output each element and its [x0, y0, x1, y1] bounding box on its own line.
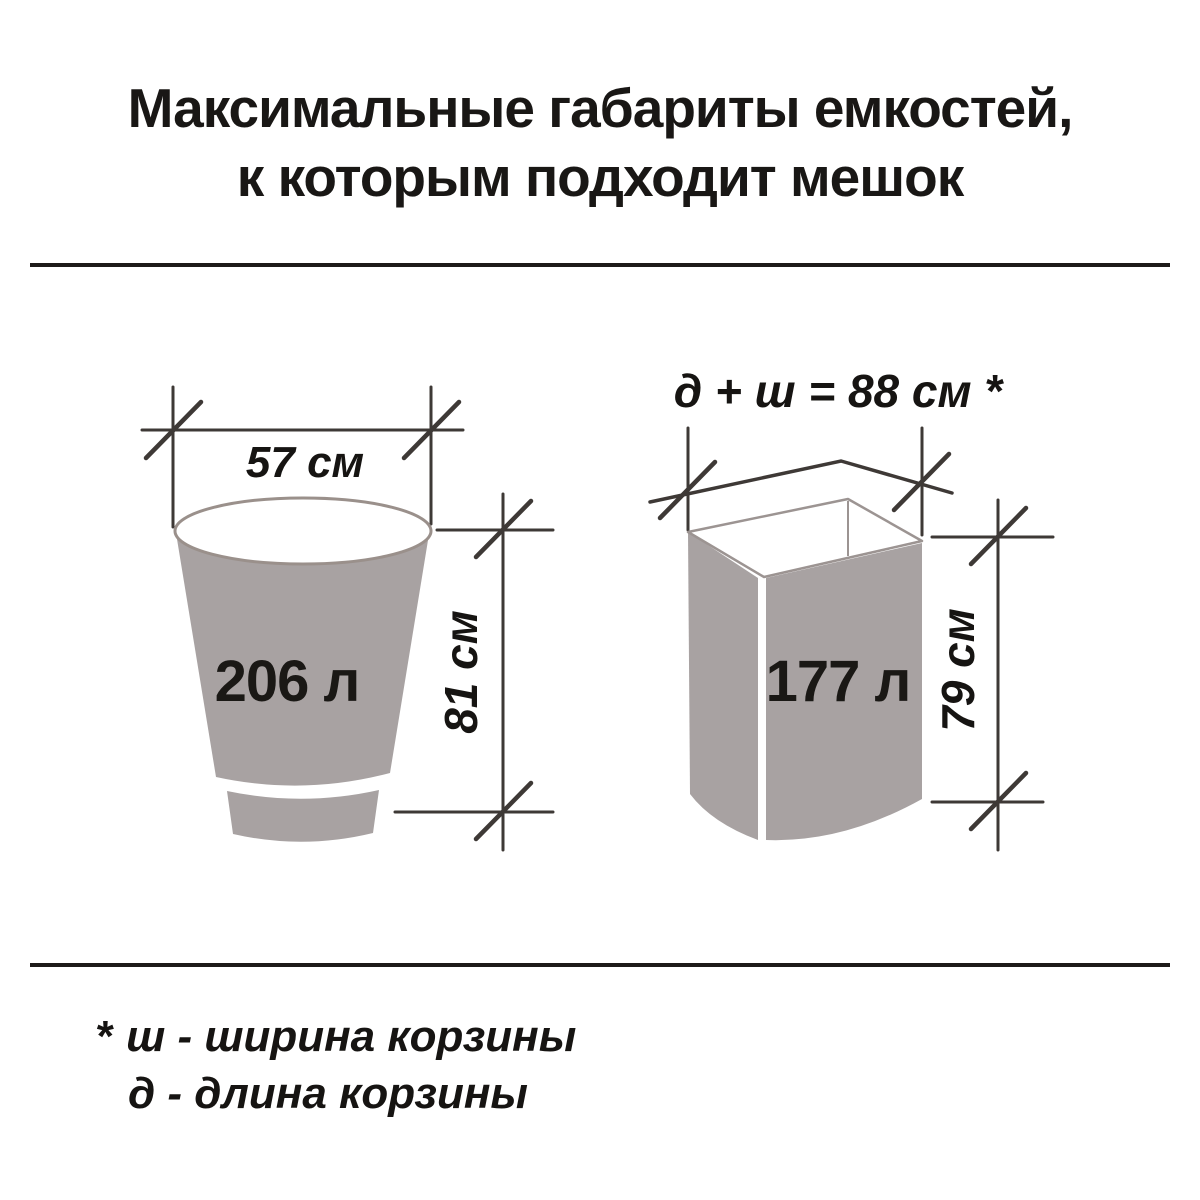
box-volume-label: 177 л: [738, 648, 938, 715]
footnote-length-definition: д - длина корзины: [128, 1069, 528, 1118]
bucket-width-label: 57 см: [205, 438, 405, 488]
footnote: *ш - ширина корзины д - длина корзины: [95, 1008, 576, 1122]
bucket-base: [227, 790, 379, 842]
bucket-volume-label: 206 л: [187, 648, 387, 715]
box-height-label: 79 см: [927, 590, 989, 750]
footnote-line2: д - длина корзины: [128, 1065, 576, 1122]
infographic-page: Максимальные габариты емкостей, к которы…: [0, 0, 1200, 1200]
footnote-width-definition: ш - ширина корзины: [126, 1012, 576, 1061]
bucket-rim: [175, 498, 431, 564]
box-dimension-formula-label: д + ш = 88 см *: [638, 364, 1038, 418]
footnote-line1: *ш - ширина корзины: [95, 1008, 576, 1065]
bucket-height-label: 81 см: [430, 592, 492, 752]
footnote-asterisk: *: [95, 1012, 112, 1061]
